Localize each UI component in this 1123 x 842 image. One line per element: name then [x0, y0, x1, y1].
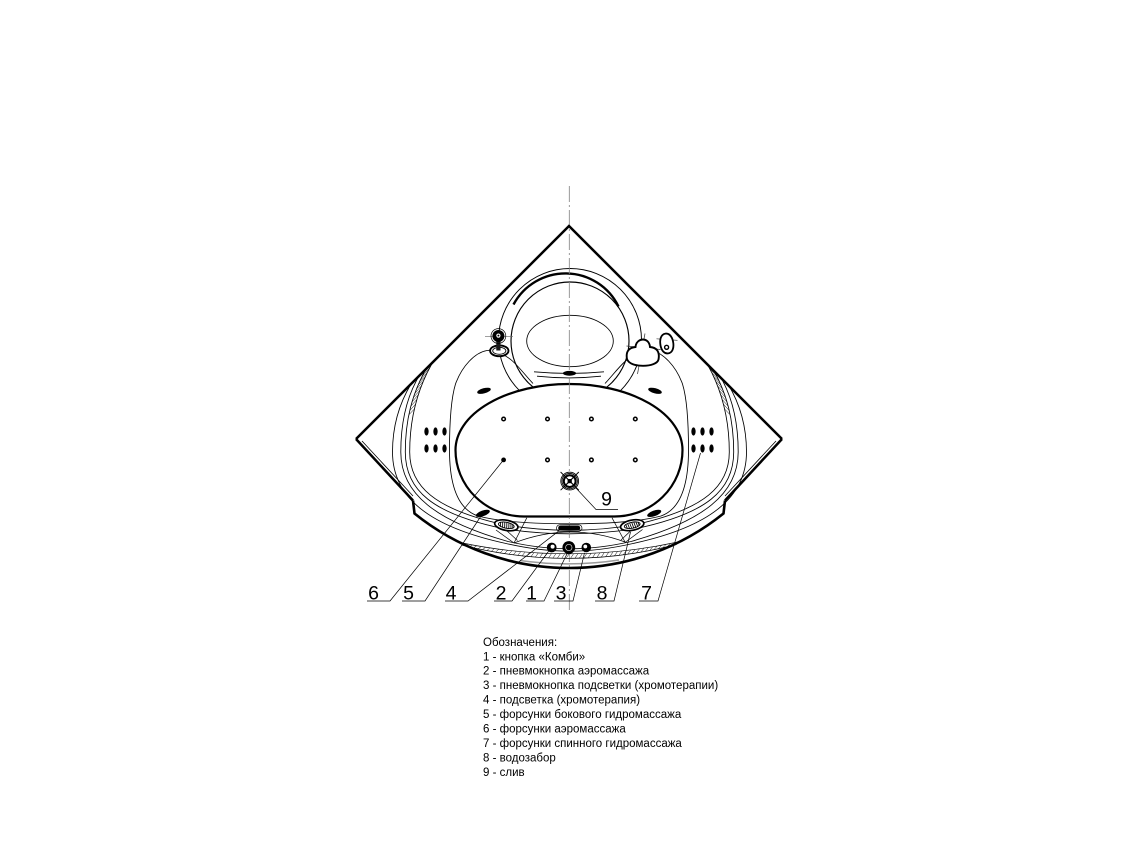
svg-text:5 - форсунки бокового гидромас: 5 - форсунки бокового гидромассажа [483, 709, 682, 721]
svg-text:7: 7 [641, 583, 652, 605]
svg-text:1 - кнопка «Комби»: 1 - кнопка «Комби» [483, 651, 585, 663]
svg-text:4: 4 [446, 583, 457, 605]
svg-text:9 - слив: 9 - слив [483, 767, 525, 779]
svg-text:2 - пневмокнопка аэромассажа: 2 - пневмокнопка аэромассажа [483, 666, 650, 678]
svg-text:7 - форсунки спинного гидромас: 7 - форсунки спинного гидромассажа [483, 738, 682, 750]
svg-text:9: 9 [601, 489, 612, 511]
svg-text:6: 6 [368, 583, 379, 605]
svg-text:8: 8 [597, 583, 608, 605]
svg-text:5: 5 [403, 583, 414, 605]
svg-text:8 - водозабор: 8 - водозабор [483, 752, 556, 764]
svg-text:3 - пневмокнопка подсветки (хр: 3 - пневмокнопка подсветки (хромотерапии… [483, 680, 718, 692]
svg-text:Обозначения:: Обозначения: [483, 637, 557, 649]
svg-text:2: 2 [496, 583, 507, 605]
svg-text:1: 1 [526, 583, 537, 605]
svg-text:6 - форсунки аэромассажа: 6 - форсунки аэромассажа [483, 724, 626, 736]
svg-text:4 - подсветка (хромотерапия): 4 - подсветка (хромотерапия) [483, 695, 640, 707]
svg-text:3: 3 [556, 583, 567, 605]
